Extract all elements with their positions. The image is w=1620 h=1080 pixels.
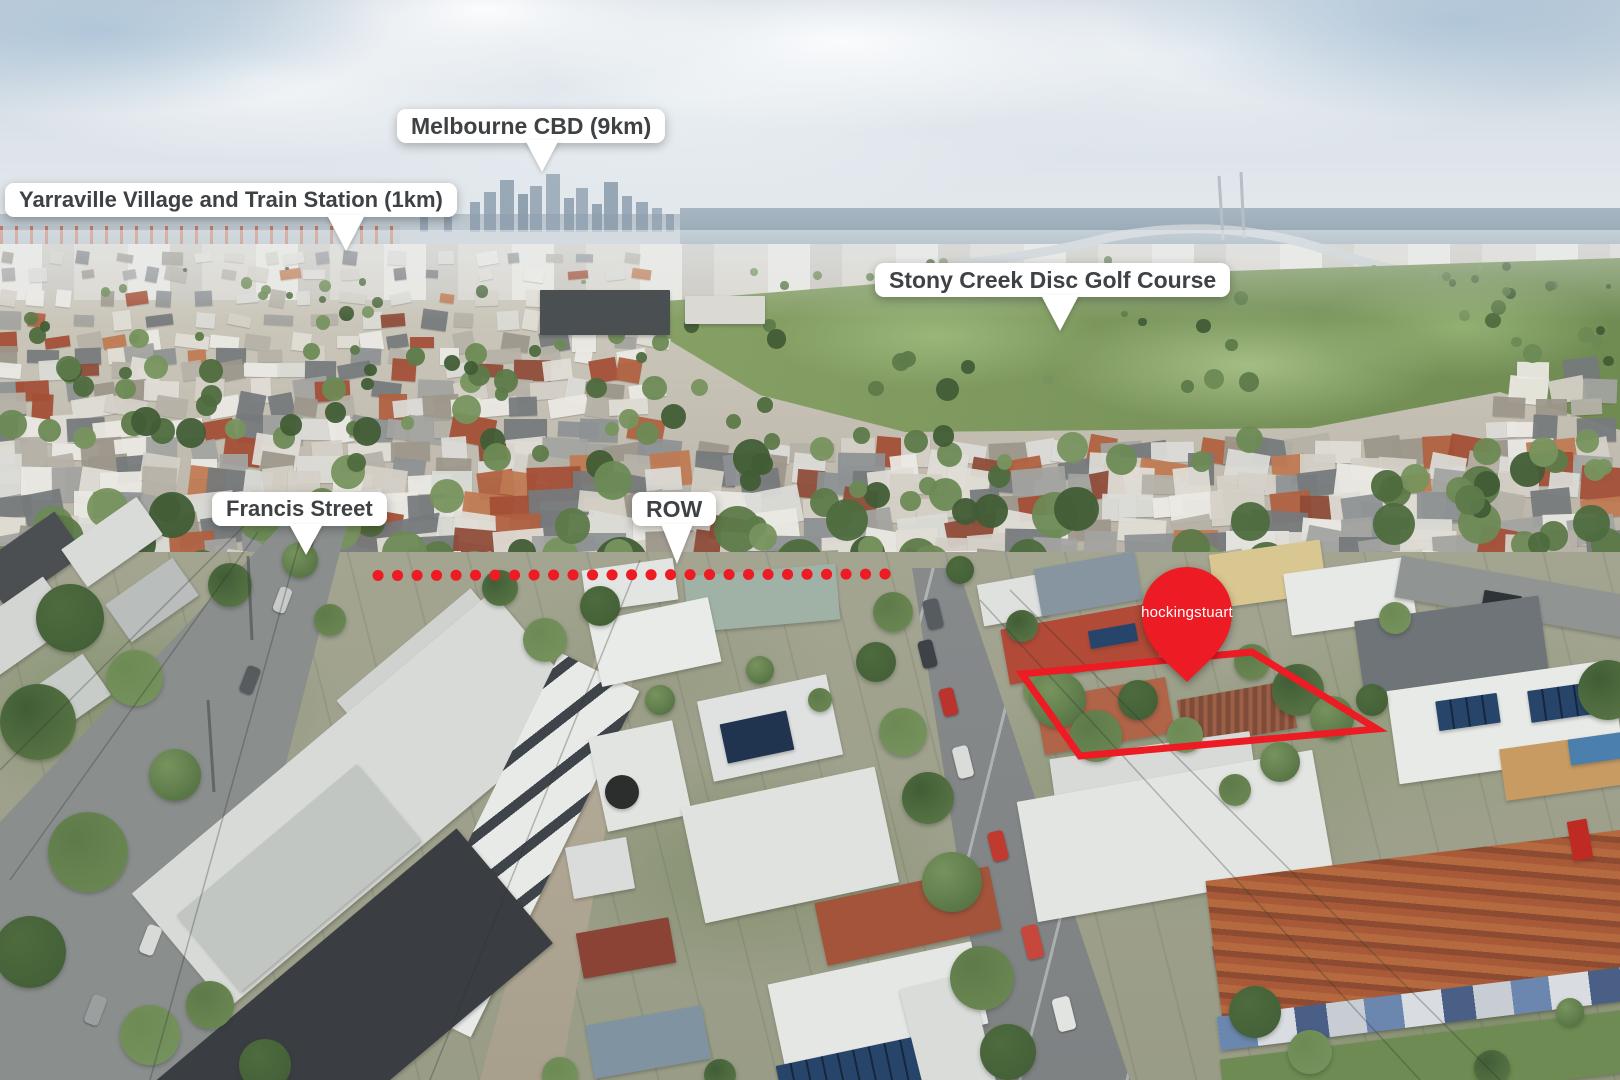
street-tree [239, 1039, 291, 1080]
label-pointer-yarraville [327, 215, 365, 251]
label-text: Francis Street [226, 496, 373, 521]
street-tree [980, 1024, 1036, 1080]
street-tree [808, 688, 832, 712]
label-text: ROW [646, 496, 702, 522]
street-tree [1219, 774, 1251, 806]
label-melbourne-cbd: Melbourne CBD (9km) [397, 109, 665, 143]
label-pointer-francis-street [289, 524, 323, 555]
street-tree [1260, 742, 1300, 782]
street-tree [482, 570, 518, 606]
street-tree [314, 604, 346, 636]
label-francis-street: Francis Street [212, 492, 387, 526]
label-pointer-stony-creek [1041, 295, 1079, 331]
street-tree [1379, 602, 1411, 634]
street-tree [186, 981, 234, 1029]
street-tree [1578, 660, 1620, 720]
street-tree [0, 916, 66, 988]
aerial-photo: hockingstuart Melbourne CBD (9km) Yarrav… [0, 0, 1620, 1080]
street-tree [1556, 998, 1584, 1026]
street-tree [1310, 696, 1354, 740]
label-text: Stony Creek Disc Golf Course [889, 267, 1216, 293]
street-tree [1234, 644, 1270, 680]
street-tree [1118, 680, 1158, 720]
label-yarraville-village: Yarraville Village and Train Station (1k… [5, 183, 457, 217]
street-tree [704, 1059, 736, 1080]
street-tree [523, 618, 567, 662]
street-tree [120, 1005, 180, 1065]
street-tree [1288, 1030, 1332, 1074]
street-tree [946, 556, 974, 584]
street-tree [542, 1057, 578, 1080]
street-tree [1474, 1050, 1510, 1080]
street-tree [208, 563, 252, 607]
street-tree [0, 684, 76, 760]
label-row: ROW [632, 492, 716, 526]
street-tree [1356, 684, 1388, 716]
label-pointer-row [661, 524, 693, 564]
street-tree [873, 592, 913, 632]
street-tree [580, 586, 620, 626]
street-tree [1167, 717, 1203, 753]
street-tree [1006, 610, 1038, 642]
street-tree [950, 946, 1014, 1010]
street-tree [922, 852, 982, 912]
street-tree [645, 685, 675, 715]
street-tree [1070, 710, 1122, 762]
street-tree [107, 650, 163, 706]
street-tree [149, 749, 201, 801]
street-tree [879, 708, 927, 756]
street-tree [48, 812, 128, 892]
label-pointer-melbourne-cbd [525, 140, 559, 172]
label-text: Yarraville Village and Train Station (1k… [19, 187, 443, 212]
label-stony-creek: Stony Creek Disc Golf Course [875, 263, 1230, 297]
trees-layer [0, 0, 1620, 1080]
street-tree [902, 772, 954, 824]
label-text: Melbourne CBD (9km) [411, 113, 651, 139]
street-tree [36, 584, 104, 652]
street-tree [1229, 986, 1281, 1038]
street-tree [856, 642, 896, 682]
street-tree [746, 656, 774, 684]
